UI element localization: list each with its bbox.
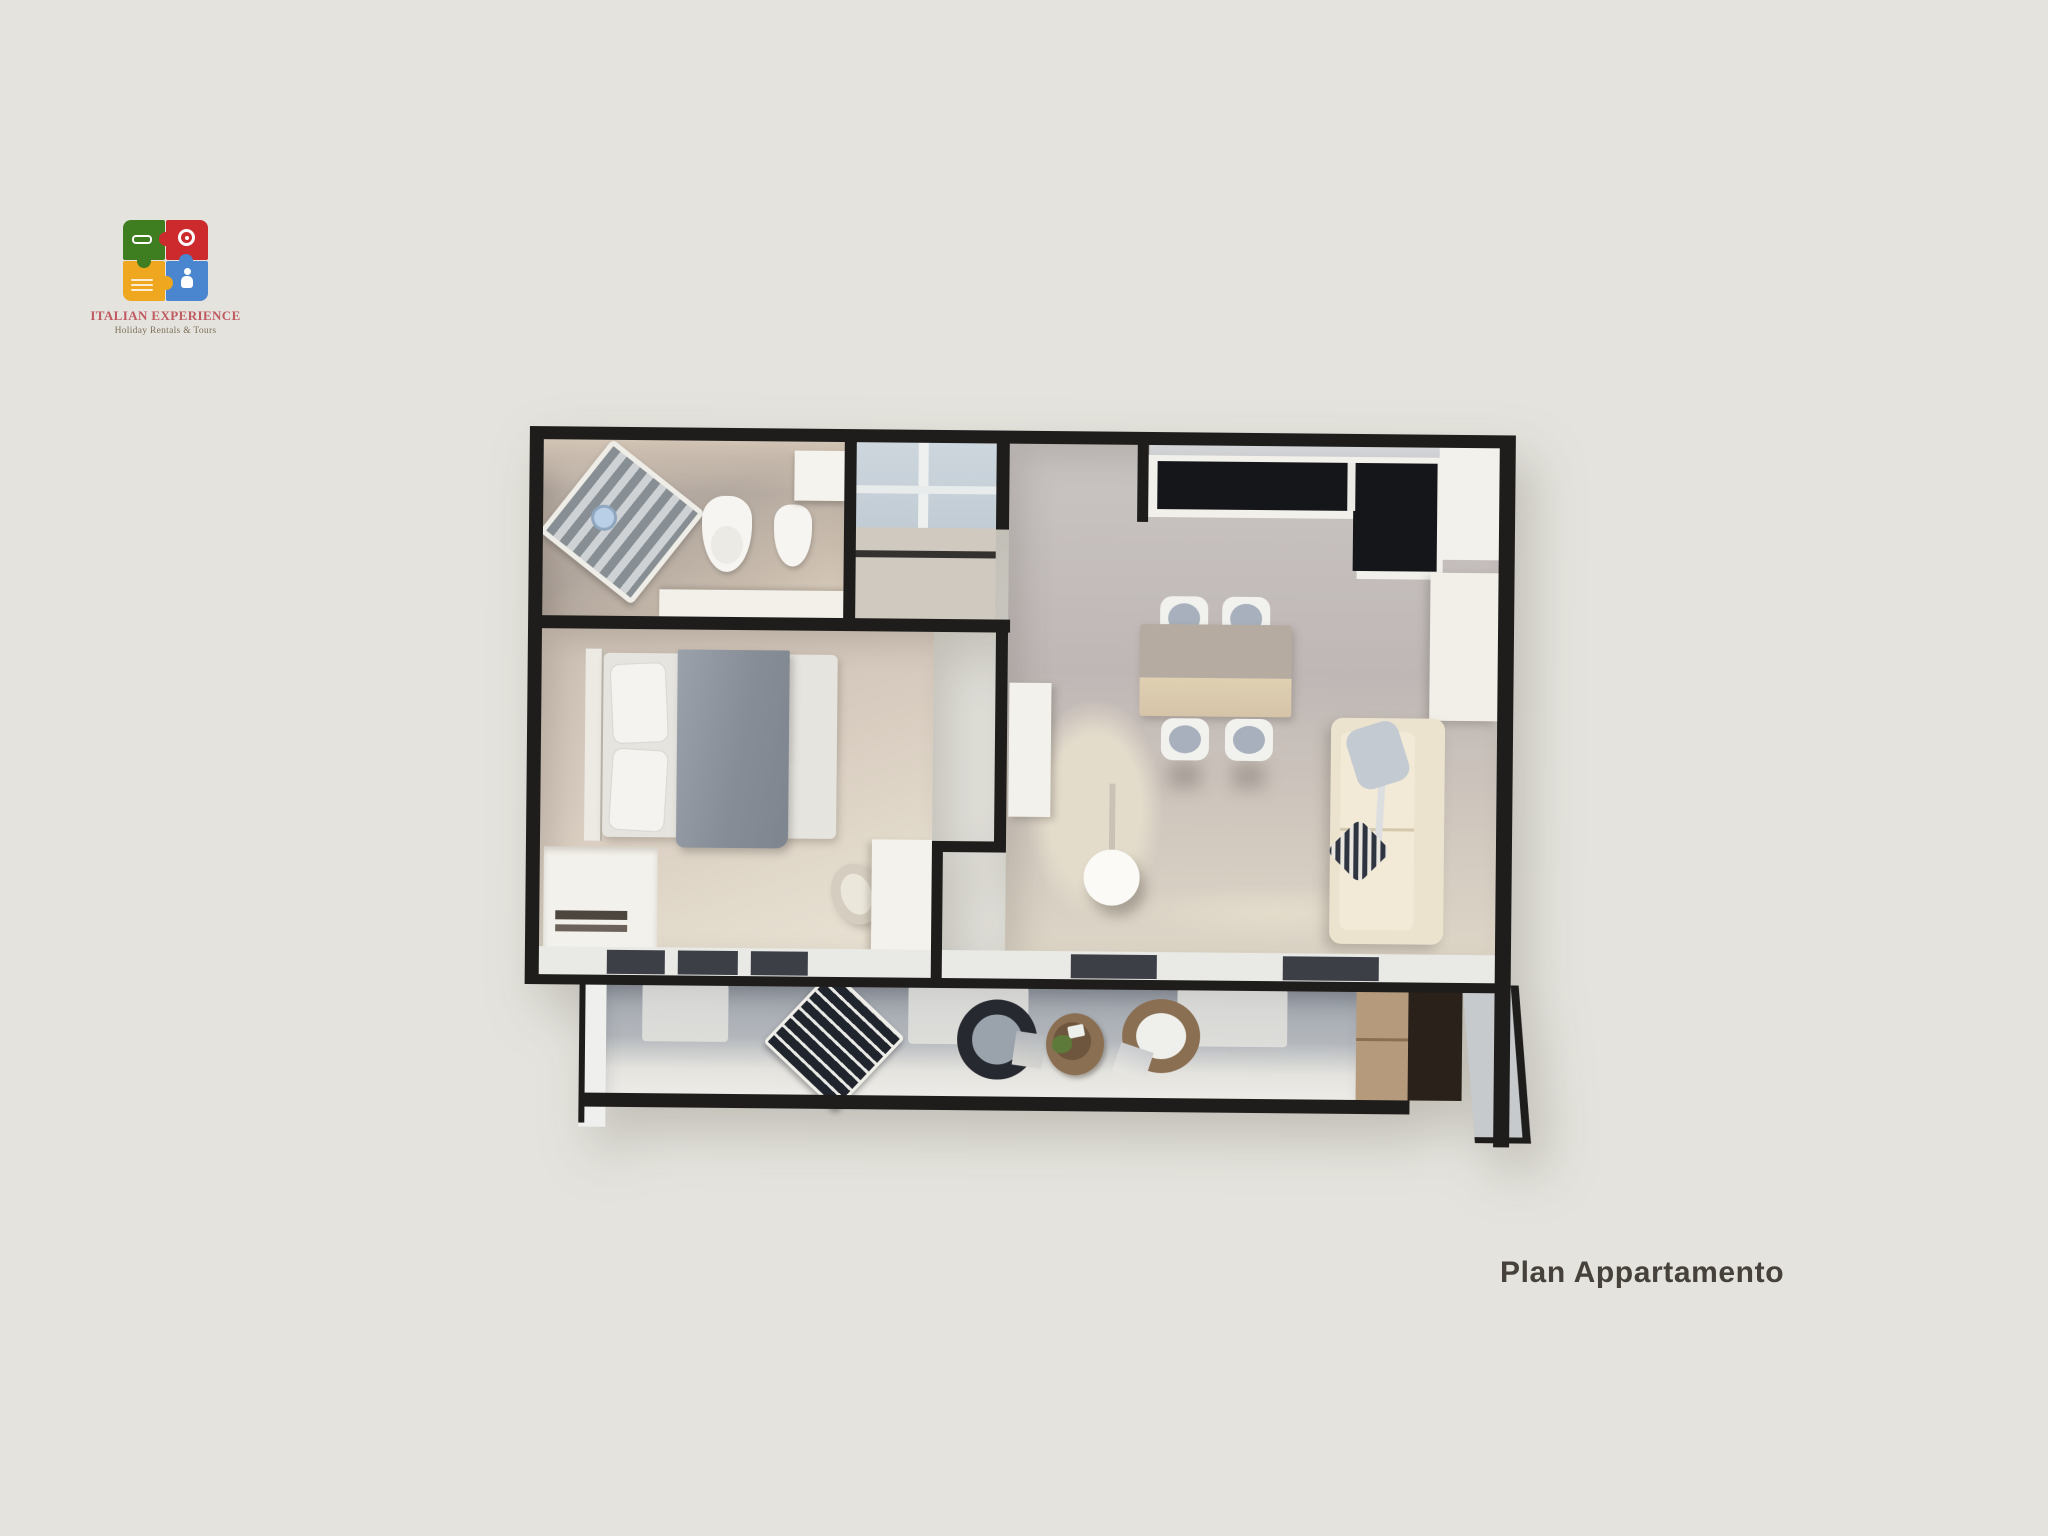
sideboard [1008, 683, 1051, 817]
bed-pillow [608, 747, 669, 832]
closet-front-rail [856, 550, 996, 558]
bed-pillow [610, 662, 669, 744]
kitchen-counter-divider [1347, 463, 1355, 511]
kitchen-corner-cabinet [1439, 448, 1500, 561]
wall-kitchen-partial [1137, 443, 1149, 522]
glass-door [678, 950, 738, 975]
bed-headboard [584, 649, 604, 841]
company-logo: ITALIAN EXPERIENCE Holiday Rentals & Tou… [88, 220, 243, 336]
drawer-slit [555, 910, 627, 920]
round-side-table [1083, 849, 1140, 906]
glass-door [607, 950, 665, 975]
bathroom-cabinet [794, 451, 844, 501]
kitchen-countertop [1157, 461, 1349, 511]
wicker-chair [1122, 999, 1201, 1074]
wall-bedroom-right-lower [931, 852, 943, 980]
bed-blanket [676, 649, 790, 848]
puzzle-tab [159, 276, 173, 290]
person-icon [181, 268, 193, 290]
dining-table [1139, 624, 1292, 717]
glass-door [751, 951, 808, 976]
bedroom-wardrobe [871, 839, 932, 952]
page: ITALIAN EXPERIENCE Holiday Rentals & Tou… [0, 0, 2048, 1536]
drawer-slit [555, 924, 627, 932]
brand-tagline: Holiday Rentals & Tours [88, 326, 243, 336]
puzzle-tab [137, 254, 151, 268]
wood-panel [1356, 990, 1409, 1100]
plan-caption: Plan Appartamento [1500, 1256, 1784, 1290]
curved-outdoor-chair [957, 999, 1038, 1080]
wall-bedroom-jog [932, 841, 1006, 853]
wicker-table-with-plant [1046, 1013, 1105, 1076]
glass-door [1283, 956, 1379, 981]
tall-cabinet [1429, 573, 1498, 722]
puzzle-tab [179, 254, 193, 268]
wall-bedroom-right-upper [994, 633, 1008, 848]
swirl-icon [178, 229, 195, 246]
closet-shelf [856, 485, 996, 494]
brand-name: ITALIAN EXPERIENCE [88, 308, 243, 324]
kitchen-countertop [1353, 463, 1438, 572]
goggles-icon [132, 235, 152, 244]
glass-door [1071, 954, 1157, 979]
puzzle-logo-icon [123, 220, 209, 302]
bathroom-vanity [659, 589, 843, 619]
floor-lamp [1109, 784, 1116, 850]
dining-chair [1225, 719, 1273, 761]
text-lines-icon [131, 276, 153, 292]
floor-plan [521, 422, 1538, 1162]
shower-head [591, 505, 617, 531]
wall-closet-right [996, 442, 1010, 530]
dark-storage-panel [1408, 990, 1463, 1101]
puzzle-tab [159, 232, 173, 246]
balcony-light-patch [642, 983, 729, 1042]
wall-bathroom-right [843, 440, 857, 625]
dining-chair [1161, 718, 1209, 760]
